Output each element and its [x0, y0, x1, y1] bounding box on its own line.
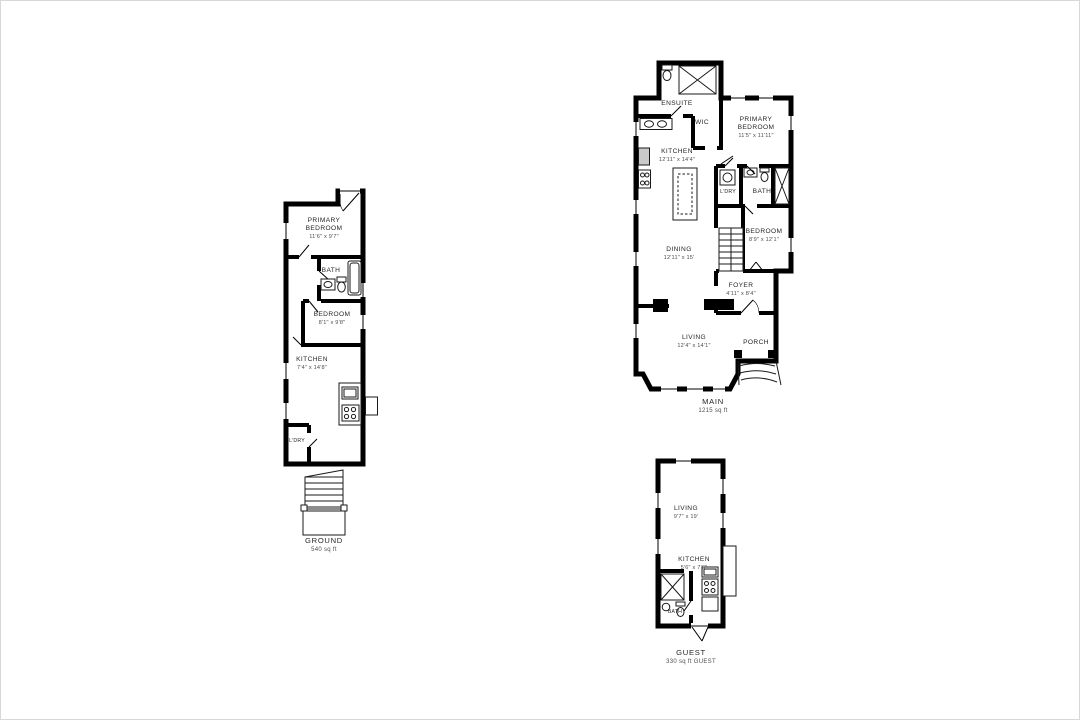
kitchen-fixtures [702, 567, 718, 611]
toilet-icon [676, 602, 685, 606]
stove-icon [702, 579, 718, 595]
main-plan-drawing [629, 56, 804, 424]
porch-post [734, 350, 742, 358]
stairs-icon [719, 228, 743, 271]
porch-steps-icon [738, 361, 781, 385]
porch-post [768, 350, 776, 358]
main-outer-walls [636, 63, 791, 389]
stairs-icon [301, 470, 347, 535]
toilet-icon [337, 277, 346, 282]
landing [303, 511, 345, 535]
side-landing [366, 397, 378, 415]
ground-plan-drawing [279, 187, 379, 565]
washer-icon [720, 170, 735, 185]
island [673, 168, 697, 220]
stove-icon [639, 170, 651, 188]
toilet-icon [662, 65, 672, 70]
main-floorplan: ENSUITE WIC PRIMARY BEDROOM 11'5" x 11'1… [629, 56, 804, 424]
fridge-icon [702, 597, 718, 611]
ground-floorplan: PRIMARY BEDROOM 11'6" x 9'7" BATH BEDROO… [279, 187, 379, 565]
sink-icon [662, 603, 670, 611]
guest-floorplan: LIVING 9'7" x 19' KITCHEN 5'6" x 7'6" BA… [646, 451, 756, 689]
guest-plan-drawing [646, 451, 756, 689]
toilet-icon [760, 168, 769, 172]
floorplan-sheet: PRIMARY BEDROOM 11'6" x 9'7" BATH BEDROO… [0, 0, 1080, 720]
stove-icon [342, 405, 359, 421]
side-deck [723, 546, 736, 596]
fridge-icon [639, 148, 650, 165]
kitchen-fixtures [339, 383, 378, 425]
